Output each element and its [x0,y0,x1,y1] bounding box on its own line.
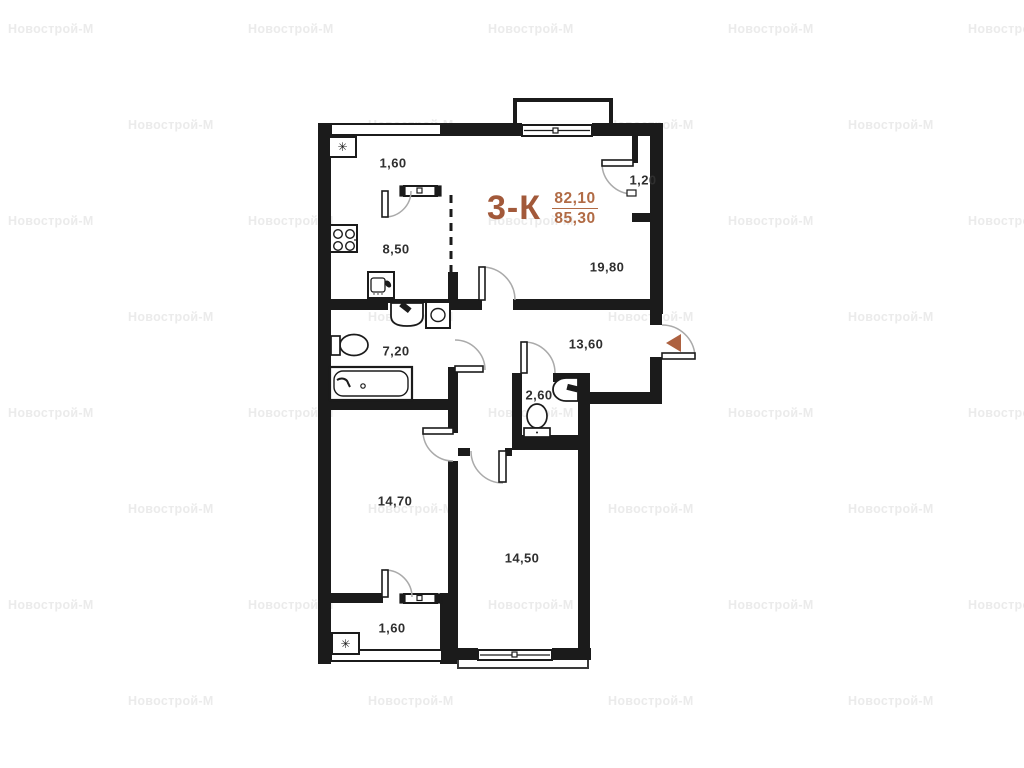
apartment-type-label: 3-К [487,188,541,228]
kitchen-sink-icon [368,272,394,298]
glazing-balcony-top [331,124,441,135]
wall-bedleft-right-b [448,461,458,597]
snowflake-icon: ✳ [328,136,357,158]
wall-wardrobe-bottom [632,213,663,222]
room-label-kitchen: 8,50 [383,242,410,257]
snowflake-icon: ✳ [331,632,360,655]
wall-hall-bottom [578,392,662,404]
room-label-wc: 2,60 [526,388,553,403]
bathtub-icon [330,367,412,400]
bathroom-washbasin-icon [391,302,423,326]
apartment-title: 3-К 82,10 85,30 [487,188,598,228]
wall-living-bottom-b [513,299,663,310]
room-label-living-room: 19,80 [590,260,625,275]
apartment-area-fraction: 82,10 85,30 [552,190,598,227]
wall-bedright-top-a [458,448,470,456]
bathroom-toilet-icon [331,335,368,356]
balcony-outline-bottom [458,660,588,668]
wall-entry-lower [650,357,662,404]
room-label-bedroom-right: 14,50 [505,551,540,566]
door-bathroom [455,340,485,372]
door-bedroom-right [471,451,506,483]
room-label-balcony-bottom: 1,60 [379,621,406,636]
room-label-bathroom: 7,20 [383,344,410,359]
snowflake-glyph: ✳ [340,638,350,650]
door-wc [521,342,555,373]
wc-toilet-icon [524,404,550,437]
entry-arrow-icon [666,334,681,352]
floorplan-canvas: Новострой-МНовострой-МНовострой-МНовостр… [0,0,1024,768]
area-living: 82,10 [554,190,595,207]
wall-right-long [578,373,590,658]
room-label-wardrobe: 1,20 [630,173,657,188]
floorplan-svg [0,0,1024,768]
wall-top-a [441,123,522,136]
wall-bottom-a [442,648,478,660]
door-balcony-bottom [382,570,412,597]
wall-balcony-top [331,593,383,603]
wall-bottom-left-corner [318,650,331,664]
room-label-bedroom-left: 14,70 [378,494,413,509]
wall-entry-upper [650,312,662,325]
snowflake-glyph: ✳ [337,141,347,153]
fraction-bar [552,208,598,209]
wall-bottom-b [552,648,591,660]
washing-machine-icon [426,302,450,328]
door-bedroom-left [423,428,453,461]
wc-washbasin-icon [553,378,579,401]
door-living [479,267,515,300]
stove-icon [330,225,357,252]
room-label-hallway: 13,60 [569,337,604,352]
wall-kitchen-bottom [331,299,388,310]
wall-wardrobe-left [632,136,638,163]
balcony-outline-top [515,100,611,126]
area-total: 85,30 [554,210,595,227]
room-label-balcony-top: 1,60 [380,156,407,171]
